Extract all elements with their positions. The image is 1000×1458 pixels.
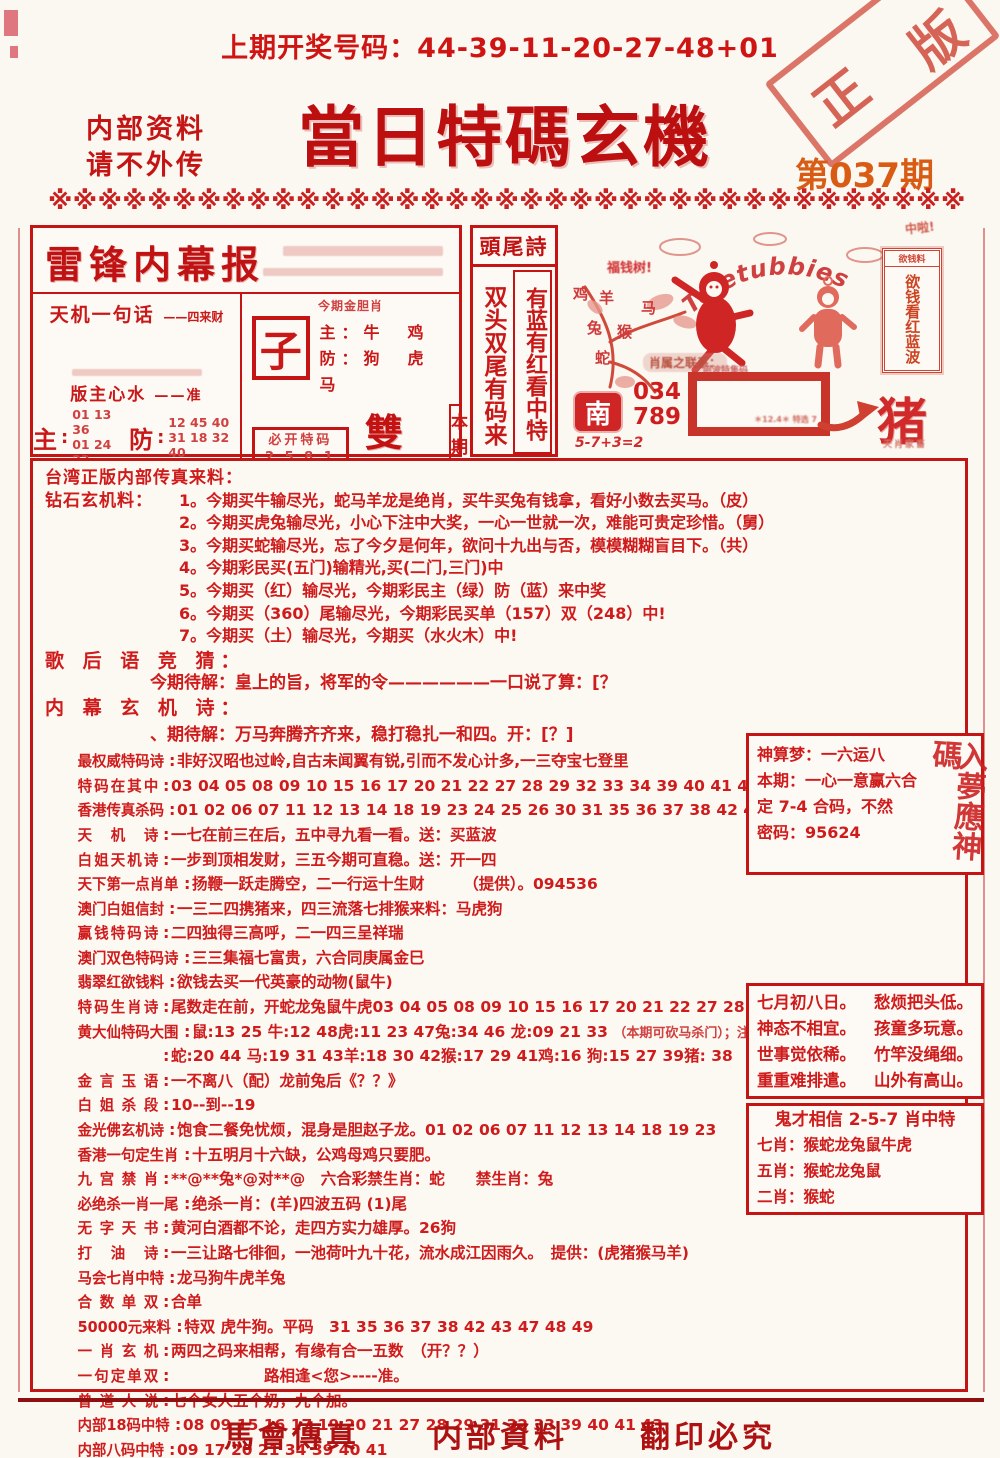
- zodiac-char: 猴: [617, 321, 632, 342]
- tip-row-text: 两四之码来相帮，有缘有合一五数 （开？？）: [171, 1342, 489, 1360]
- poem-line: 七月初八日。 愁烦把头低。: [757, 990, 973, 1016]
- dan-header: 今期金胆肖: [242, 297, 459, 314]
- zodiac-pick-panel: 今期金胆肖 子 主：牛 鸡 防：狗 虎 马 必开特码 2 5 8 1 7 雙單: [242, 294, 459, 459]
- tip-numbers: 034 789: [633, 380, 681, 430]
- tip-row-label: 白姐天机诗: [45, 849, 158, 872]
- tip-row-text: 一不离八（配）龙前兔后《？？》: [171, 1072, 404, 1090]
- tip-row-text: 饱食二餐免忧烦，混身是胆赵子龙。01 02 06 07 11 12 13 14 …: [177, 1121, 716, 1139]
- wave-color-tip-box: 欲钱料 欲钱看红蓝波: [882, 248, 942, 373]
- frame-small-print: ＊12.4＊ 特选 7: [754, 414, 817, 425]
- stamp-char: 正: [795, 49, 882, 140]
- ghost-box-line: 二肖：猴蛇: [757, 1184, 973, 1210]
- tip-row-label: 合数单双: [45, 1291, 158, 1314]
- tip-row: 打油诗 : 一三让路七徘徊，一池荷叶九十花，流水成江因雨久。 提供：(虎猪猴马羊…: [45, 1242, 965, 1267]
- zhu-fang-picks: 主：牛 鸡 防：狗 虎 马: [320, 320, 451, 398]
- tip-row-text: 欲钱去买一代英豪的动物(鼠牛): [177, 973, 393, 991]
- internal-note: 内部资料 请不外传: [86, 112, 206, 184]
- tip-row-label: 最权威特码诗: [45, 750, 164, 773]
- tip-row-text: 一七在前三在后，五中寻九看一看。送：买蓝波: [171, 826, 497, 844]
- poem-line-left: 双头双尾有码来: [473, 267, 513, 457]
- fang-char: 防: [129, 420, 153, 455]
- diamond-tips: 钻石玄机料： 1。今期买牛输尽光，蛇马羊龙是绝肖，买牛买兔有钱拿，看好小数去买马…: [45, 490, 965, 648]
- tip-row-text: 一三二四携猪来，四三流落七排猴来料：马虎狗: [177, 900, 503, 918]
- ghost-believe-box: 鬼才相信 2-5-7 肖中特 七肖：猴蛇龙兔鼠牛虎五肖：猴蛇龙兔鼠二肖：猴蛇: [746, 1103, 984, 1215]
- tip-row-text: 一三让路七徘徊，一池荷叶九十花，流水成江因雨久。 提供：(虎猪猴马羊): [171, 1244, 689, 1262]
- footer-item: 内部資料: [432, 1412, 568, 1456]
- poem-line: 重重难排遣。 山外有高山。: [757, 1068, 973, 1094]
- tip-row: 澳门双色特码诗 : 三三集福七富贵，六合同庚属金巳: [45, 947, 965, 972]
- source-line: 台湾正版内部传真来料：: [45, 467, 965, 490]
- diamond-tip-line: 3。今期买蛇输尽光，忘了今夕是何年，欲问十九出与否，模模糊糊盲目下。（共）: [179, 535, 774, 558]
- tip-row-text: 非好汉昭也过岭,自古未闻翼有锐,引而不发心计多,一三夺宝七登里: [177, 752, 629, 770]
- leifeng-insider-report-box: 雷锋内幕报 天机一句话 ——四来财 版主心水 ——准 主 : 01 13 360…: [30, 225, 462, 457]
- number-formula: 5-7+3=2: [575, 435, 643, 451]
- won-exclamation: 中啦!: [904, 218, 935, 238]
- tip-row: 赢钱特码诗 : 二四独得三高呼，二一四三呈祥瑞: [45, 922, 965, 947]
- tip-row-label: 九宫禁肖: [45, 1168, 158, 1191]
- tip-row-text: 合单: [171, 1293, 202, 1311]
- tip-row-label: 一句定单双: [45, 1365, 158, 1388]
- tip-row-label: 澳门双色特码诗: [45, 947, 178, 970]
- illustration-region: 福钱树! 鸡 羊 马 兔 猴 蛇: [565, 225, 990, 460]
- stamp-char: 版: [891, 0, 978, 82]
- diamond-tips-label: 钻石玄机料：: [45, 490, 153, 648]
- ghost-box-line: 五肖：猴蛇龙兔鼠: [757, 1158, 973, 1184]
- tip-row-label: 金光佛玄机诗: [45, 1119, 164, 1142]
- tip-row-label: 天下第一点肖单: [45, 873, 178, 896]
- zodiac-branch-box: 子: [252, 316, 310, 380]
- tip-row-text: 三三集福七富贵，六合同庚属金巳: [192, 949, 425, 967]
- illegible-print: [283, 246, 443, 256]
- diamond-tip-line: 2。今期买虎兔输尽光，小心下注中大奖，一心一世就一次，难能可贵定珍惜。（舅）: [179, 512, 774, 535]
- footer-item: 馬會傳真: [224, 1412, 360, 1456]
- xinshui-heading: 版主心水 ——准: [33, 380, 240, 405]
- diamond-tips-list: 1。今期买牛输尽光，蛇马羊龙是绝肖，买牛买兔有钱拿，看好小数去买马。（皮）2。今…: [153, 490, 774, 648]
- diamond-tip-line: 4。今期彩民买(五门)输精光,买(二门,三门)中: [179, 557, 774, 580]
- tip-row: 50000元来料 : 特双 虎牛狗。平码 31 35 36 37 38 42 4…: [45, 1316, 965, 1341]
- zodiac-char: 羊: [599, 287, 614, 308]
- tip-row-label: 一肖玄机: [45, 1340, 158, 1363]
- tip-row-text: 路相逢<您>----准。: [171, 1367, 409, 1385]
- diamond-tip-line: 7。今期买（土）输尽光，今期买（水火木）中!: [179, 625, 774, 648]
- ghost-box-title: 鬼才相信 2-5-7 肖中特: [757, 1109, 973, 1132]
- tip-row: 一肖玄机 : 两四之码来相帮，有缘有合一五数 （开？？）: [45, 1340, 965, 1365]
- tip-row-text: 特双 虎牛狗。平码 31 35 36 37 38 42 43 47 48 49: [184, 1318, 593, 1336]
- illegible-print: [263, 268, 443, 276]
- tianji-heading: 天机一句话 ——四来财: [33, 300, 240, 327]
- south-seal: 南: [575, 393, 621, 431]
- tip-row-text: 绝杀一肖：(羊)四波五码 (1)尾: [192, 1195, 407, 1213]
- head-tail-poem-box: 頭尾詩 双头双尾有码来 有蓝有红看中特: [470, 225, 558, 457]
- tip-row: 马会七肖中特 : 龙马狗牛虎羊兔: [45, 1267, 965, 1292]
- tip-row-text: 扬鞭一跃走腾空，二一行运十生财 （提供）。094536: [192, 875, 598, 893]
- tip-row: 合数单双 : 合单: [45, 1291, 965, 1316]
- tip-row-text: 10--到--19: [171, 1096, 255, 1114]
- zodiac-char: 兔: [587, 317, 602, 338]
- tip-row-text: 鼠:13 25 牛:12 48虎:11 23 47兔:34 46 龙:09 21…: [192, 1023, 608, 1041]
- tip-row-label: 打油诗: [45, 1242, 158, 1265]
- zodiac-char: 鸡: [573, 283, 588, 304]
- tip-row: 天下第一点肖单 : 扬鞭一跃走腾空，二一行运十生财 （提供）。094536: [45, 873, 965, 898]
- tip-row-label: 翡翠红欲钱料: [45, 971, 164, 994]
- main-tips-box: 台湾正版内部传真来料： 钻石玄机料： 1。今期买牛输尽光，蛇马羊龙是绝肖，买牛买…: [30, 458, 968, 1392]
- diamond-tip-line: 1。今期买牛输尽光，蛇马羊龙是绝肖，买牛买兔有钱拿，看好小数去买马。（皮）: [179, 490, 774, 513]
- footer: 馬會傳真内部資料翻印必究: [0, 1412, 1000, 1456]
- tip-row-label: 白姐杀段: [45, 1094, 158, 1117]
- tip-row-label: 50000元来料: [45, 1316, 171, 1339]
- footer-item: 翻印必究: [640, 1412, 776, 1456]
- diamond-tip-line: 5。今期买（红）输尽光，今期彩民主（绿）防（蓝）来中奖: [179, 580, 774, 603]
- tip-row-text: 黄河白酒都不论，走四方实力雄厚。26狗: [171, 1219, 456, 1237]
- page-title: 當日特碼玄機: [298, 84, 712, 180]
- tip-row-label: 特码生肖诗: [45, 996, 158, 1019]
- poem-line: 世事觉依稀。 竹竿没绳细。: [757, 1042, 973, 1068]
- tip-row-label: 马会七肖中特: [45, 1267, 164, 1290]
- left-edge-line: [18, 228, 20, 1392]
- tip-row-label: 黄大仙特码大围: [45, 1021, 178, 1044]
- lottery-flyer-page: 上期开奖号码：44-39-11-20-27-48+01 正 版 内部资料 请不外…: [0, 0, 1000, 1458]
- leifeng-title: 雷锋内幕报: [33, 228, 459, 289]
- poem-line-right: 有蓝有红看中特: [513, 270, 552, 454]
- tip-row-label: 特码在其中: [45, 775, 158, 798]
- insider-poem-label: 内 幕 玄 机 诗：: [45, 697, 965, 720]
- riddle-section-label: 歌 后 语 竞 猜：: [45, 650, 965, 673]
- tip-row: 无字天书 : 黄河白酒都不论，走四方实力雄厚。26狗: [45, 1217, 965, 1242]
- tip-row-label: 必绝杀一肖一尾: [45, 1193, 178, 1216]
- footer-rule: [18, 1398, 984, 1402]
- dream-vertical-motto: 入夢應神碼: [922, 738, 983, 873]
- flat-codes-panel: 本期十平码: [449, 404, 459, 461]
- poem-box-title: 頭尾詩: [473, 228, 555, 267]
- calendar-poem-box: 七月初八日。 愁烦把头低。 神态不相宜。 孩童多玩意。 世事觉依稀。 竹竿没绳细…: [746, 983, 984, 1099]
- tip-row-text: 一步到顶相发财，三五今期可直稳。送：开一四: [171, 851, 497, 869]
- zodiac-char: 蛇: [595, 347, 610, 368]
- poem-line: 神态不相宜。 孩童多玩意。: [757, 1016, 973, 1042]
- tip-row-label: 赢钱特码诗: [45, 922, 158, 945]
- decorative-border: ※※※※※※※※※※※※※※※※※※※※※※※※※※※※※※※※※※※※※: [48, 186, 993, 215]
- tip-row: 澳门白姐信封 : 一三二四携猪来，四三流落七排猴来料：马虎狗: [45, 898, 965, 923]
- dream-oracle-box: 神算梦：一六运八 本期：一心一意赢六合 定 7-4 合码，不然 密码：95624…: [746, 733, 984, 875]
- riddle-answer: 今期待解：皇上的旨，将军的令——————一口说了算：[？: [45, 672, 965, 695]
- tip-row-text: 十五明月十六缺，公鸡母鸡只要肥。: [192, 1146, 440, 1164]
- tip-row-label: 无字天书: [45, 1217, 158, 1240]
- tip-row-text: 龙马狗牛虎羊兔: [177, 1269, 286, 1287]
- ghost-box-line: 七肖：猴蛇龙兔鼠牛虎: [757, 1132, 973, 1158]
- tip-row-text: 二四独得三高呼，二一四三呈祥瑞: [171, 924, 404, 942]
- tip-row-text: 03 04 05 08 09 10 15 16 17 20 21 22 27 2…: [171, 777, 813, 795]
- zhu-char: 主: [33, 420, 57, 455]
- tip-box-text: 欲钱看红蓝波: [904, 267, 921, 369]
- pig-caption: 天肖家畜: [883, 437, 927, 450]
- diamond-tip-line: 6。今期买（360）尾输尽光，今期彩民买单（157）双（248）中!: [179, 603, 774, 626]
- tip-row-label: 天机诗: [45, 824, 158, 847]
- tip-row-text: 蛇:20 44 马:19 31 43羊:18 30 42猴:17 29 41鸡:…: [171, 1047, 733, 1065]
- tip-box-header: 欲钱料: [885, 251, 939, 267]
- illegible-print: [72, 369, 202, 376]
- tip-row-label: 香港一句定生肖: [45, 1144, 178, 1167]
- empty-result-frame: ＊12.4＊ 特选 7: [688, 372, 830, 436]
- tip-row: 一句定单双 : 路相逢<您>----准。: [45, 1365, 965, 1390]
- arrow-icon: [817, 393, 881, 433]
- tip-row-label: 澳门白姐信封: [45, 898, 164, 921]
- tip-row-label: 香港传真杀码: [45, 799, 164, 822]
- tip-row-text: **@**兔*@对**@ 六合彩禁生肖：蛇 禁生肖：兔: [171, 1170, 553, 1188]
- tianji-panel: 天机一句话 ——四来财 版主心水 ——准 主 : 01 13 3601 24 2…: [33, 294, 242, 459]
- tip-row-label: 金言玉语: [45, 1070, 158, 1093]
